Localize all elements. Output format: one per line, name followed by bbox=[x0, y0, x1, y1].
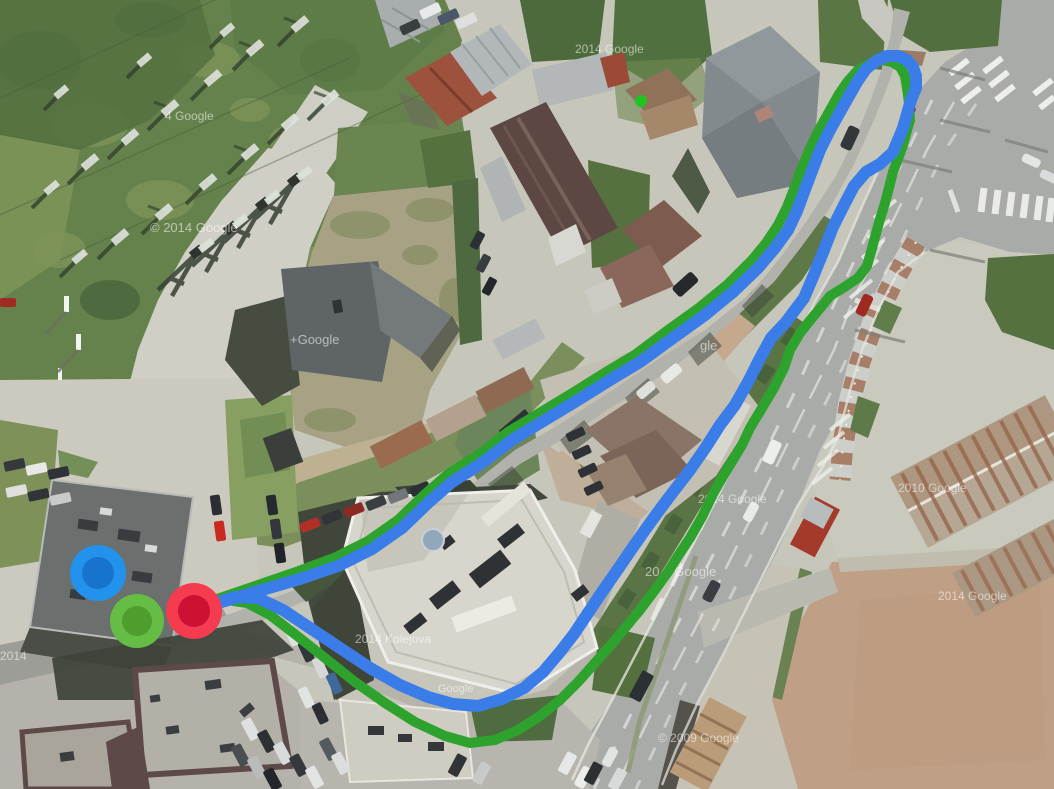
svg-text:© 2009 Google: © 2009 Google bbox=[658, 731, 739, 745]
svg-text:2014 Kolejova: 2014 Kolejova bbox=[355, 632, 431, 646]
svg-text:gle: gle bbox=[700, 338, 717, 353]
svg-text:20 + Google: 20 + Google bbox=[645, 564, 716, 579]
svg-text:+Google: +Google bbox=[290, 332, 340, 347]
svg-text:Google: Google bbox=[438, 683, 473, 695]
svg-text:2010 Google: 2010 Google bbox=[898, 481, 967, 495]
svg-text:4 Google: 4 Google bbox=[165, 109, 214, 123]
svg-text:© 2014 Google: © 2014 Google bbox=[150, 220, 238, 235]
svg-text:2014 Google: 2014 Google bbox=[575, 42, 644, 56]
svg-text:2014: 2014 bbox=[0, 649, 27, 663]
svg-text:2014 Google: 2014 Google bbox=[938, 589, 1007, 603]
